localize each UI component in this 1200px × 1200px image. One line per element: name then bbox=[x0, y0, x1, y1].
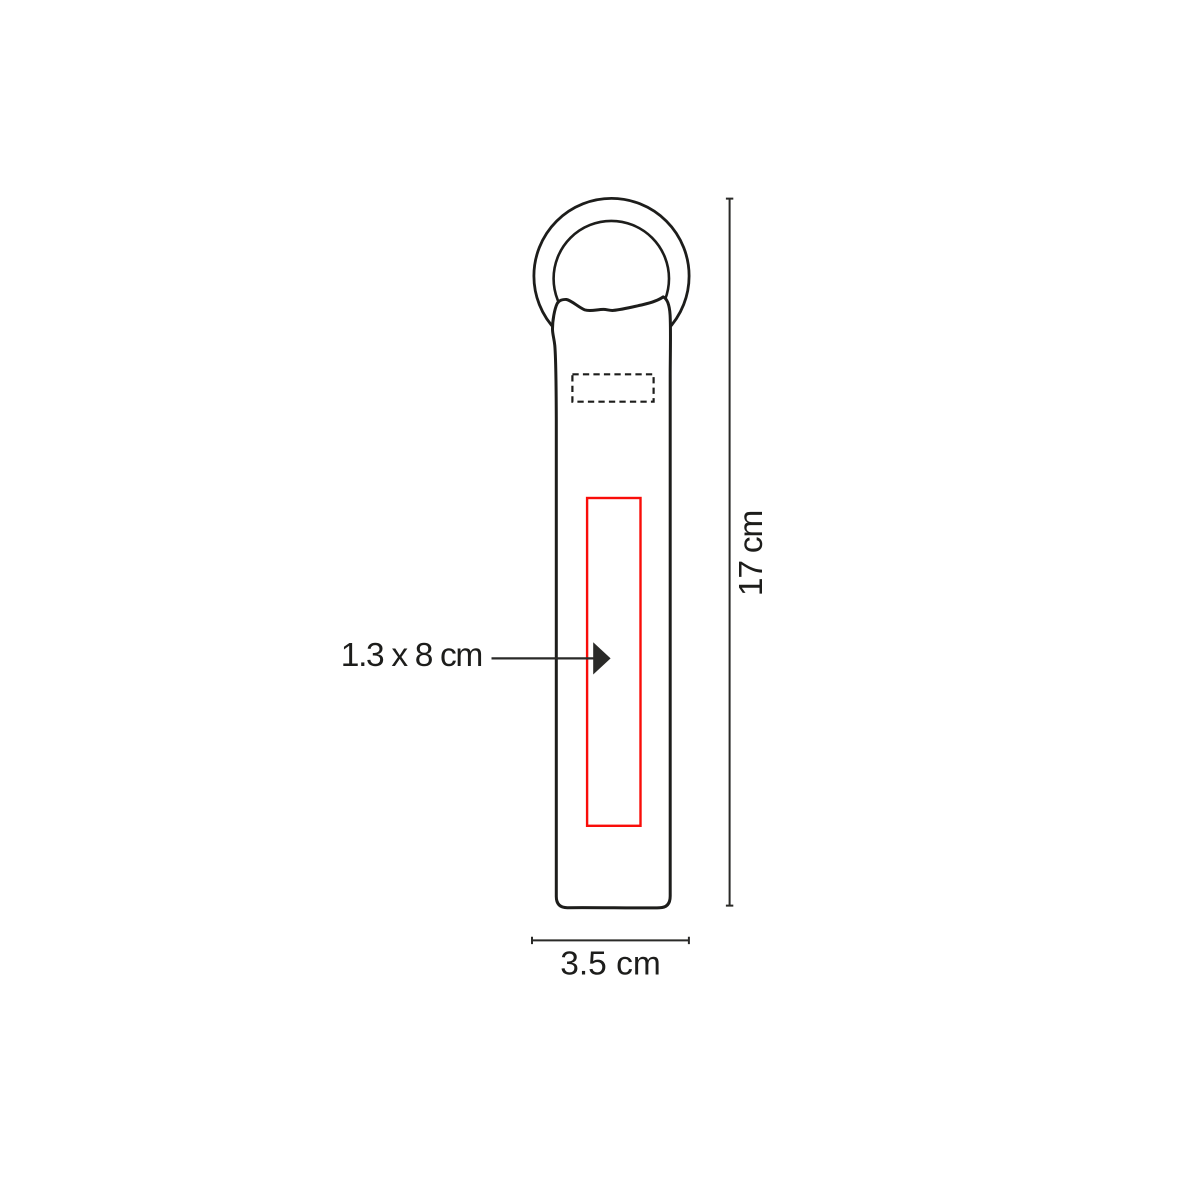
svg-text:3.5 cm: 3.5 cm bbox=[560, 946, 661, 983]
svg-text:1.3 x 8 cm: 1.3 x 8 cm bbox=[341, 637, 482, 674]
svg-text:17 cm: 17 cm bbox=[733, 511, 770, 596]
